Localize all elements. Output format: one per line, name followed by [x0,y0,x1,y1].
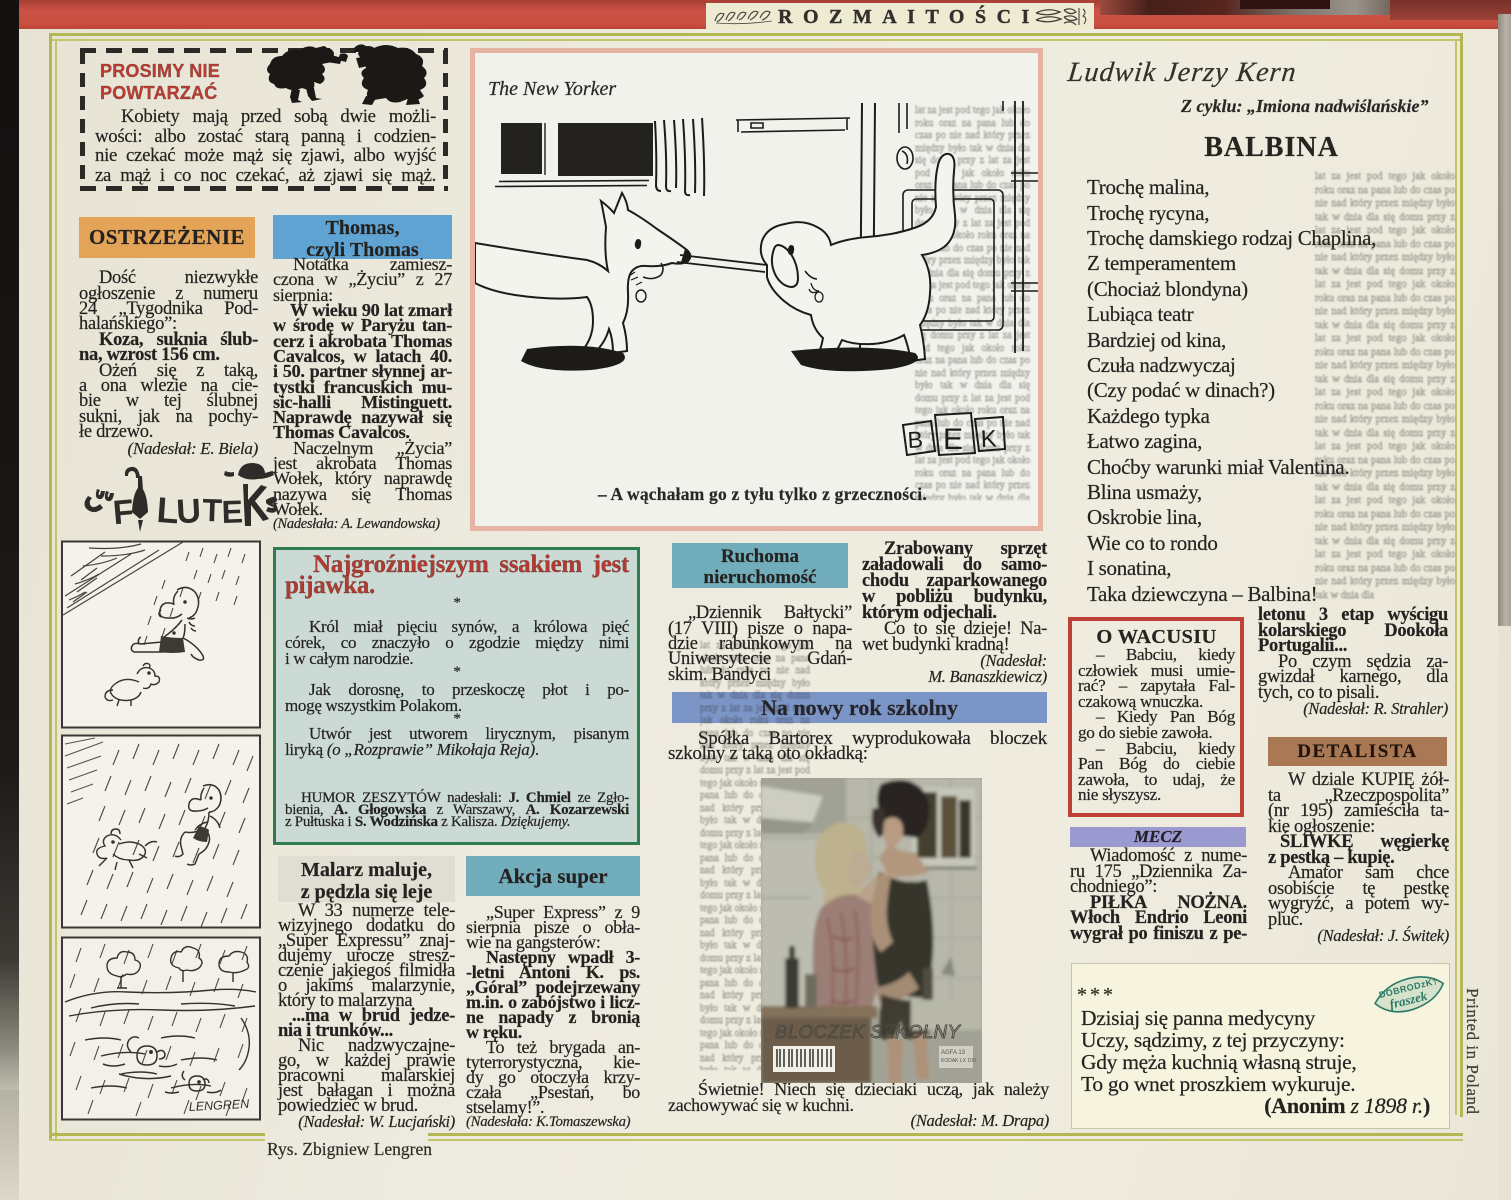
svg-text:KODAK LX 100: KODAK LX 100 [941,1058,976,1064]
svg-text:AGFA 13: AGFA 13 [941,1050,966,1056]
svg-text:E: E [943,423,963,456]
svg-text:F: F [111,493,135,533]
svg-text:T: T [202,492,223,529]
svg-text:B: B [907,426,924,453]
svg-text:BLOCZEK SZKOLNY: BLOCZEK SZKOLNY [775,1021,962,1042]
svg-text:U: U [175,492,202,531]
svg-text:E: E [221,493,244,530]
svg-text:K: K [980,425,997,453]
